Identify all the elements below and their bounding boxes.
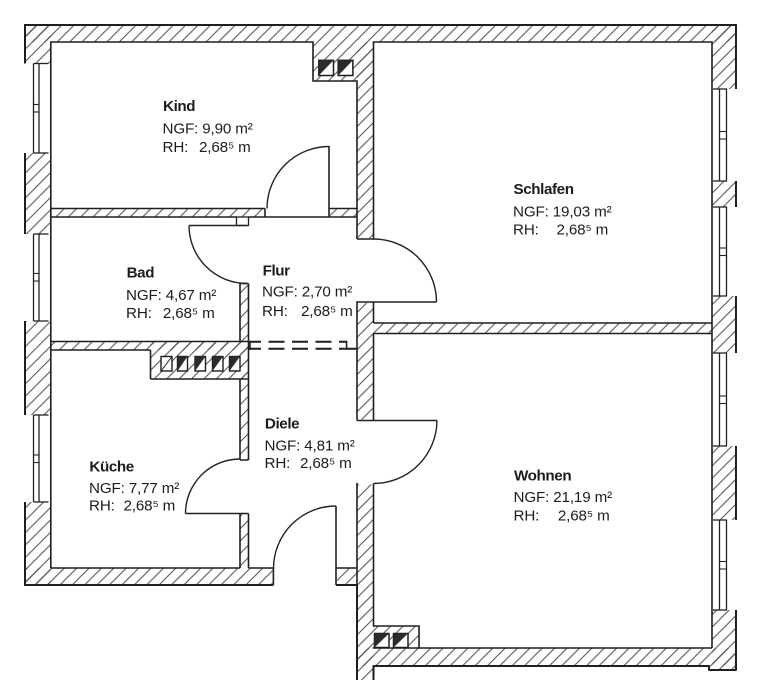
svg-text:RH:: RH: <box>163 139 189 156</box>
svg-text:Schlafen: Schlafen <box>514 181 574 198</box>
svg-text:Wohnen: Wohnen <box>514 468 571 485</box>
svg-text:RH:: RH: <box>262 303 288 320</box>
svg-text:2,68⁵ m: 2,68⁵ m <box>199 139 251 156</box>
svg-text:NGF: 19,03 m²: NGF: 19,03 m² <box>513 204 612 221</box>
svg-text:NGF: 2,70 m²: NGF: 2,70 m² <box>262 284 352 301</box>
svg-text:2,68⁵ m: 2,68⁵ m <box>300 455 352 472</box>
svg-text:NGF: 4,81 m²: NGF: 4,81 m² <box>265 438 355 455</box>
svg-text:NGF: 4,67 m²: NGF: 4,67 m² <box>126 287 216 304</box>
svg-text:2,68⁵ m: 2,68⁵ m <box>557 222 609 239</box>
svg-text:Diele: Diele <box>265 416 299 433</box>
svg-text:NGF: 7,77 m²: NGF: 7,77 m² <box>89 480 179 497</box>
svg-text:RH:: RH: <box>514 508 540 525</box>
svg-text:2,68⁵ m: 2,68⁵ m <box>301 303 353 320</box>
svg-text:2,68⁵ m: 2,68⁵ m <box>124 498 176 515</box>
svg-text:Bad: Bad <box>127 265 155 282</box>
svg-text:RH:: RH: <box>126 305 152 322</box>
svg-text:RH:: RH: <box>89 498 115 515</box>
svg-text:RH:: RH: <box>265 455 291 472</box>
svg-text:Küche: Küche <box>89 459 133 476</box>
svg-text:NGF: 21,19 m²: NGF: 21,19 m² <box>514 489 613 506</box>
svg-text:RH:: RH: <box>513 222 539 239</box>
svg-text:2,68⁵ m: 2,68⁵ m <box>163 305 215 322</box>
svg-text:Kind: Kind <box>163 98 195 115</box>
svg-text:2,68⁵ m: 2,68⁵ m <box>558 508 610 525</box>
svg-text:NGF: 9,90 m²: NGF: 9,90 m² <box>163 121 253 138</box>
svg-text:Flur: Flur <box>263 263 291 280</box>
